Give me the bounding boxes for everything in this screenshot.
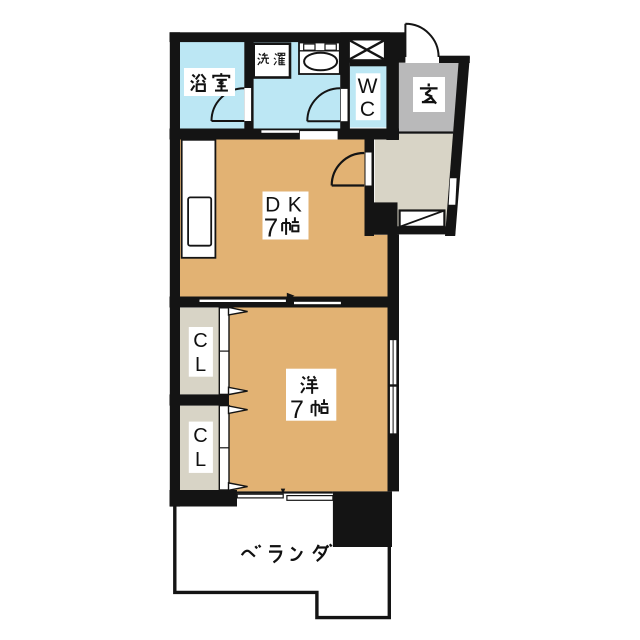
svg-text:L: L — [195, 449, 206, 471]
svg-text:L: L — [195, 354, 206, 376]
svg-text:W: W — [358, 75, 378, 98]
svg-text:C: C — [360, 98, 375, 121]
svg-text:C: C — [193, 330, 207, 352]
svg-text:7: 7 — [264, 213, 278, 243]
svg-text:C: C — [193, 425, 207, 447]
svg-text:K: K — [288, 194, 302, 217]
svg-text:7: 7 — [290, 396, 304, 424]
